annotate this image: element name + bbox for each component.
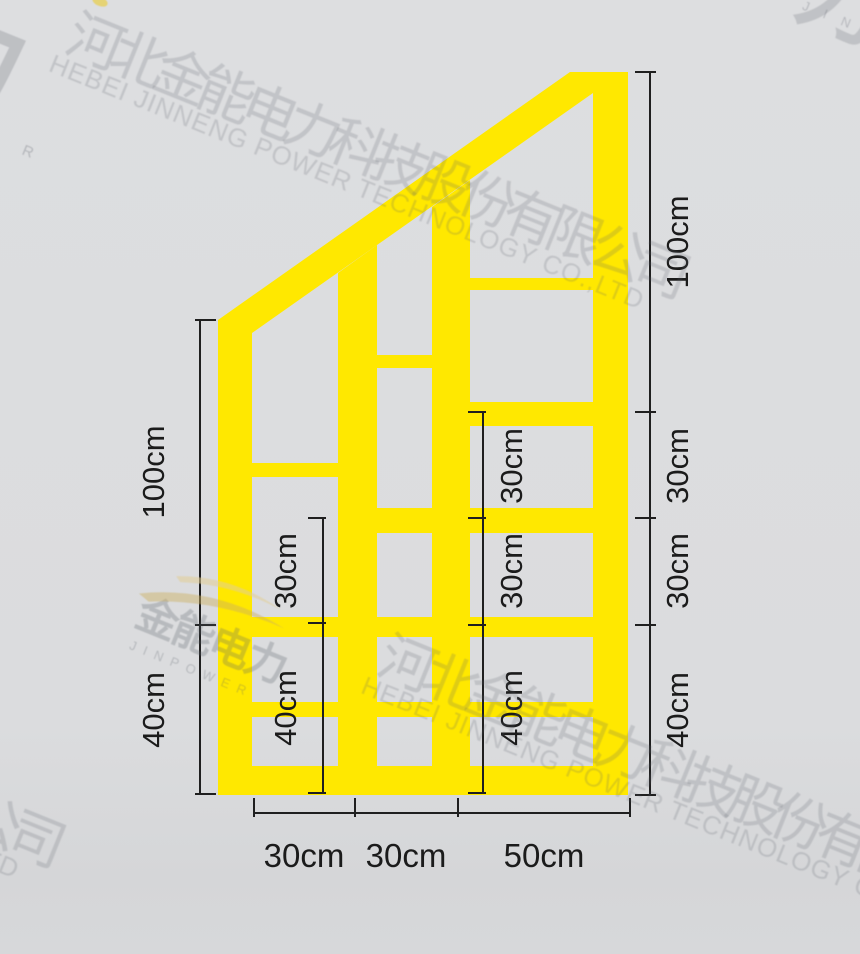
frame-rung-mid-band [338, 508, 593, 533]
dim-line-right [635, 72, 656, 795]
dim-line-inner-left [308, 518, 326, 793]
dim-label: 40cm [136, 672, 171, 748]
frame-rail-left [218, 320, 252, 795]
dim-label: 30cm [268, 533, 303, 609]
frame-rung-full-upper [218, 617, 628, 637]
dim-label: 30cm [366, 837, 447, 874]
frame-rung-right-col-upper [470, 278, 593, 290]
dim-line-inner-right [468, 412, 486, 793]
frame-bottom-bar [218, 766, 628, 795]
frame-rung-left-col [252, 463, 338, 477]
dim-label: 30cm [660, 428, 695, 504]
dim-line-left [195, 320, 216, 794]
dim-label: 30cm [660, 533, 695, 609]
frame-rung-right-col-mid [470, 402, 593, 426]
dim-label: 50cm [504, 837, 585, 874]
product-image: 100cm 40cm 30cm 40cm 30cm 30cm 40cm 100c… [0, 0, 860, 954]
frame-sloped-top-bar [218, 72, 593, 333]
dim-label: 40cm [494, 670, 529, 746]
dim-line-bottom [254, 798, 630, 817]
dim-label: 100cm [136, 425, 171, 518]
dim-label: 40cm [660, 672, 695, 748]
dim-label: 30cm [264, 837, 345, 874]
dim-label: 30cm [494, 428, 529, 504]
insulated-ladder-diagram: 100cm 40cm 30cm 40cm 30cm 30cm 40cm 100c… [0, 0, 860, 954]
frame-rail-right [593, 72, 628, 795]
dim-label: 100cm [660, 195, 695, 288]
dim-label: 40cm [268, 670, 303, 746]
frame-rung-mid-col-upper [377, 355, 432, 368]
dim-label: 30cm [494, 533, 529, 609]
